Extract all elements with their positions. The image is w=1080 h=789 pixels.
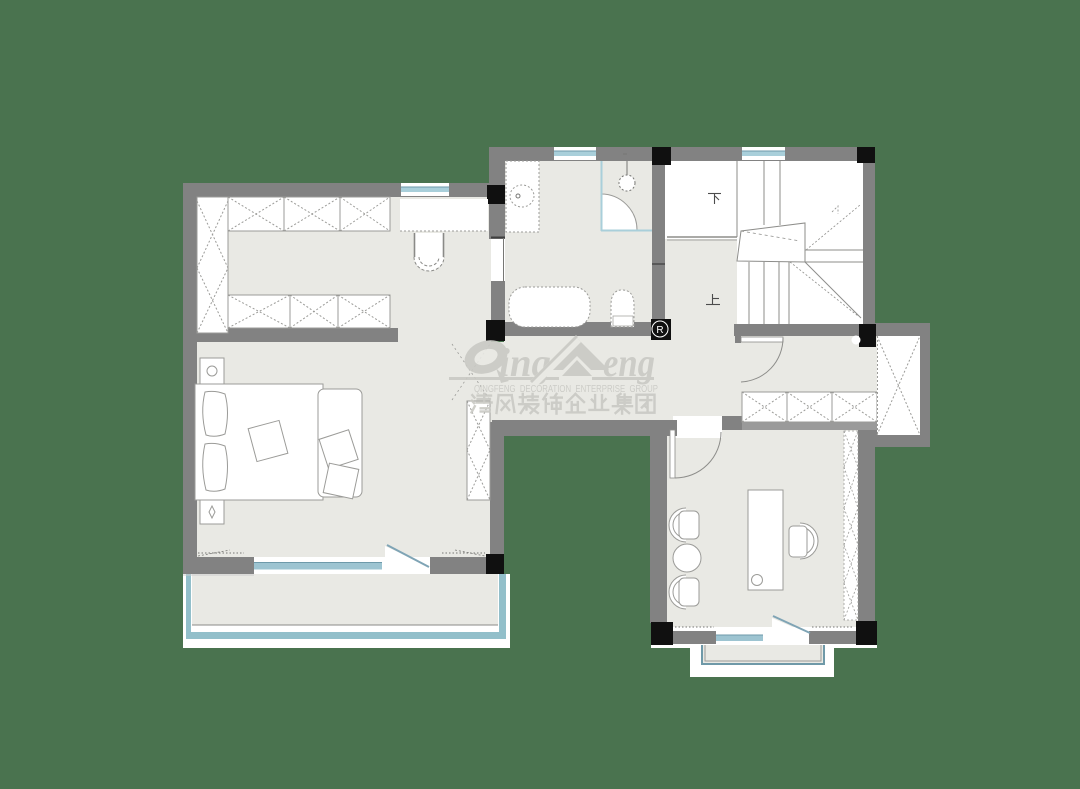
svg-text:R: R: [656, 325, 663, 336]
svg-text:QINGFENG DECORATION ENTERPRI: QINGFENG DECORATION ENTERPRISE GROUP: [474, 384, 658, 395]
